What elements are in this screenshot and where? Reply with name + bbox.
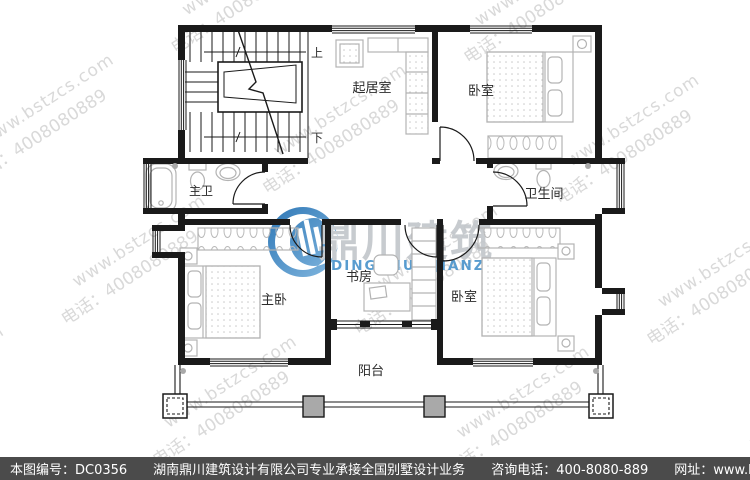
- label-balcony: 阳台: [358, 364, 384, 379]
- label-master-bedroom: 主卧: [261, 293, 287, 308]
- window-bay-masterbed: [153, 231, 160, 252]
- footer-phone: 咨询电话：400-8080-889: [491, 459, 648, 478]
- label-master-bath: 主卫: [189, 184, 213, 198]
- balcony-slider: [337, 321, 431, 328]
- sink-master: [216, 164, 240, 181]
- label-bedroom-bottom: 卧室: [451, 289, 477, 305]
- window-top-living: [332, 26, 415, 33]
- window-bottom-bedroom: [473, 359, 533, 366]
- bed-bottom: [478, 228, 574, 351]
- label-stairs-down: 下: [311, 131, 323, 145]
- footer-bar: 本图编号：DC0356 湖南鼎川建筑设计有限公司专业承接全国别墅设计业务 咨询电…: [0, 457, 750, 480]
- bed-master: [180, 228, 298, 356]
- window-stairs: [179, 60, 186, 130]
- label-bathroom: 卫生间: [524, 187, 563, 202]
- label-bedroom-top: 卧室: [468, 83, 494, 99]
- window-bay-bedroom: [617, 294, 624, 309]
- window-bottom-masterbed: [210, 359, 288, 366]
- balcony-column-right: [424, 396, 445, 417]
- balcony-column-left: [303, 396, 324, 417]
- label-study: 书房: [346, 269, 372, 285]
- floor-plan-drawing: 鼎川建筑 DINGCHUAN JIANZHU: [0, 0, 750, 457]
- window-bay-bathroom: [617, 164, 624, 208]
- footer-website: 网址：www.bstzcs.com: [674, 459, 750, 478]
- footer-company: 湖南鼎川建筑设计有限公司专业承接全国别墅设计业务: [153, 459, 465, 478]
- sink-bath: [494, 163, 518, 180]
- door-bedroom-top: [440, 127, 474, 161]
- bed-top: [487, 36, 591, 158]
- label-living-room: 起居室: [352, 80, 391, 96]
- window-top-bedroom: [470, 26, 532, 33]
- label-stairs-up: 上: [311, 46, 323, 60]
- footer-serial: 本图编号：DC0356: [10, 459, 127, 478]
- staircase: [185, 30, 308, 158]
- toilet-bath: [536, 162, 551, 188]
